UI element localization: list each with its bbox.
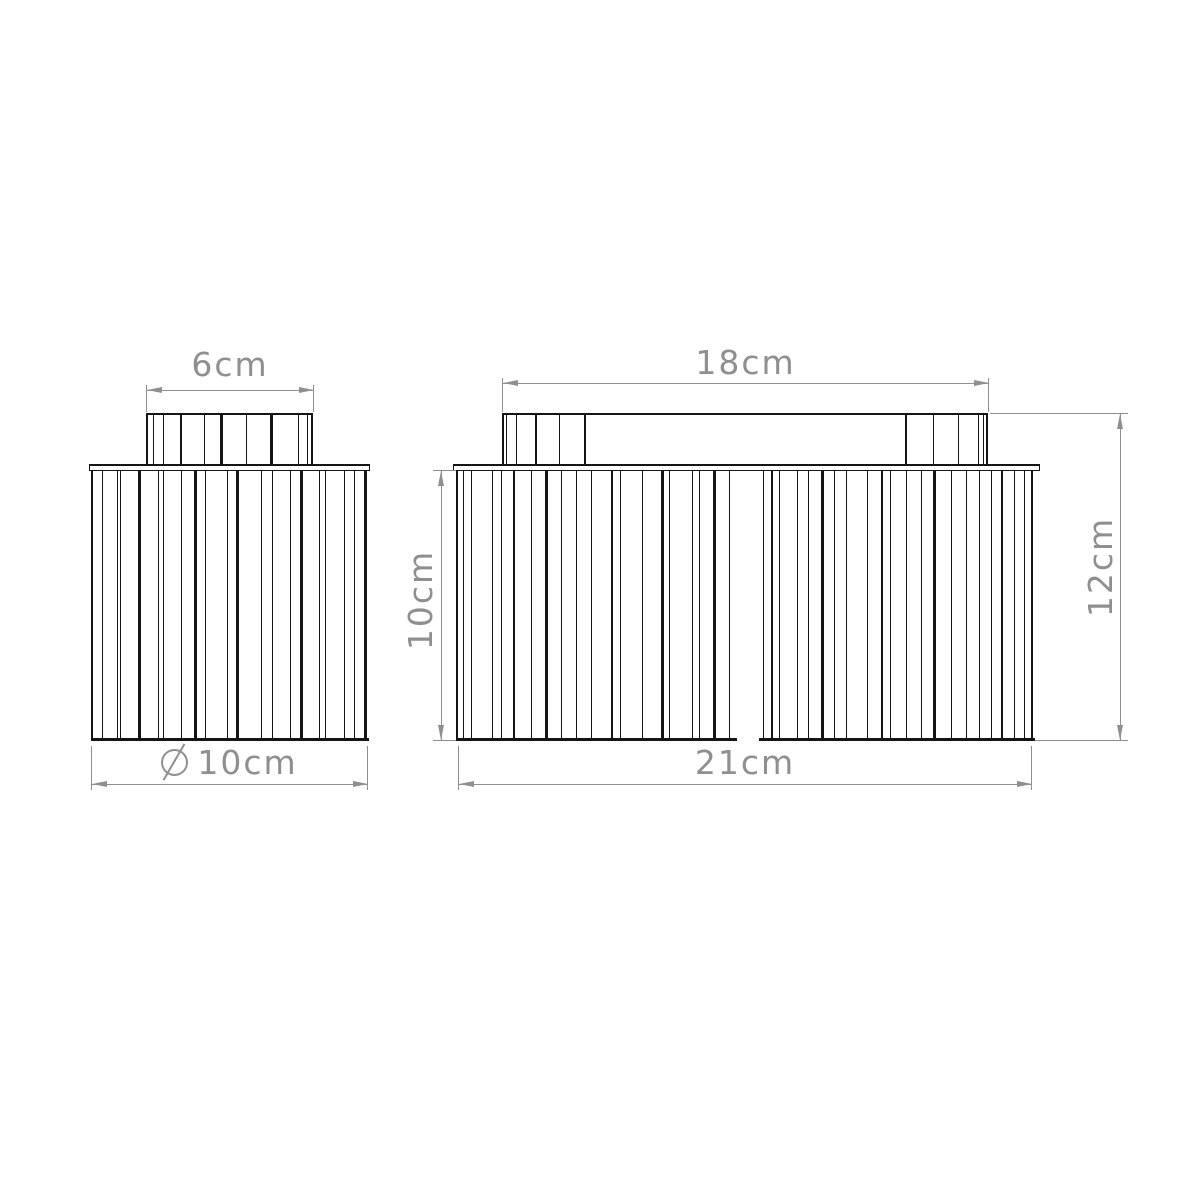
rib-line <box>364 471 365 741</box>
rib-line <box>138 471 141 741</box>
dimension-line <box>146 390 314 391</box>
bottom-edge <box>458 738 737 741</box>
arrow-down-icon <box>1117 725 1123 740</box>
rib-line <box>729 471 730 741</box>
extension-line <box>433 740 456 741</box>
lamp-dimension-drawing: 6cm 18cm 10cm 21cm <box>0 0 1200 1200</box>
arrow-left-icon <box>147 387 162 393</box>
rib-line <box>220 415 223 464</box>
rib-line <box>951 471 952 741</box>
rib-line <box>921 471 922 741</box>
dim-text: 21cm <box>695 743 795 782</box>
rib-line <box>713 471 716 741</box>
dim-text: 6cm <box>191 345 268 384</box>
dim-text: 10cm <box>401 550 440 650</box>
rib-line <box>584 413 586 464</box>
rib-line <box>307 415 308 464</box>
diameter-symbol-icon <box>161 749 188 776</box>
arrow-down-icon <box>438 725 444 740</box>
dim-label-diameter-left: 10cm <box>91 742 368 782</box>
rib-line <box>958 413 959 464</box>
rib-line <box>236 471 239 741</box>
rib-line <box>506 413 507 464</box>
dim-label-top-width-right: 18cm <box>502 342 989 382</box>
rib-line <box>270 415 273 464</box>
arrow-right-icon <box>299 387 314 393</box>
rib-line <box>991 471 992 741</box>
bottom-edge <box>93 738 369 741</box>
rib-line <box>120 471 121 741</box>
rib-line <box>319 471 320 741</box>
rib-line <box>933 471 936 741</box>
rib-line <box>1024 471 1025 741</box>
rib-line <box>771 471 773 741</box>
rib-line <box>779 471 780 741</box>
rib-line <box>978 413 979 464</box>
rib-line <box>205 471 206 741</box>
dimension-line <box>458 784 1032 785</box>
arrow-up-icon <box>438 471 444 486</box>
rib-line <box>561 471 562 741</box>
rib-line <box>661 471 664 741</box>
rib-line <box>983 413 984 464</box>
rib-line <box>204 415 205 464</box>
right-lamp-cap-left <box>502 413 585 464</box>
rib-line <box>821 471 824 741</box>
rib-line <box>516 413 517 464</box>
rib-line <box>181 471 182 741</box>
extension-line <box>1035 740 1128 741</box>
rib-line <box>117 471 118 741</box>
rib-line <box>354 471 355 741</box>
arrow-up-icon <box>1117 414 1123 429</box>
dim-text: 10cm <box>197 743 297 782</box>
rib-line <box>501 471 502 741</box>
rib-line <box>513 471 515 741</box>
rib-line <box>194 471 197 741</box>
rib-line <box>492 471 493 741</box>
rib-line <box>535 413 537 464</box>
dimension-line <box>91 784 368 785</box>
rib-line <box>102 471 103 741</box>
left-lamp-body <box>91 471 367 741</box>
rib-line <box>591 471 592 741</box>
rib-line <box>246 415 247 464</box>
dimension-line <box>502 383 989 384</box>
right-lamp-body <box>456 471 1033 741</box>
rib-line <box>890 471 891 741</box>
rib-line <box>834 471 835 741</box>
rib-line <box>227 471 228 741</box>
rib-line <box>163 471 164 741</box>
rib-line <box>1014 471 1015 741</box>
rib-line <box>153 415 154 464</box>
rib-line <box>576 471 577 741</box>
rib-line <box>933 413 934 464</box>
dim-text: 18cm <box>695 343 795 382</box>
rib-line <box>463 471 464 741</box>
rib-line <box>846 471 847 741</box>
rib-line <box>979 471 980 741</box>
rib-line <box>808 471 809 741</box>
rib-line <box>531 471 532 741</box>
rib-line <box>180 415 182 464</box>
rib-line <box>163 415 164 464</box>
right-lamp-flange <box>453 464 1040 471</box>
rib-line <box>325 471 326 741</box>
rib-line <box>290 471 291 741</box>
rib-line <box>298 415 299 464</box>
rib-line <box>881 471 883 741</box>
rib-line <box>559 413 560 464</box>
rib-line <box>611 471 613 741</box>
left-lamp-cap <box>146 413 313 464</box>
rib-line <box>620 471 621 741</box>
rib-line <box>344 471 345 741</box>
rib-line <box>272 471 273 741</box>
rib-line <box>763 471 764 741</box>
dim-text: 12cm <box>1081 517 1120 617</box>
dim-label-body-width-right: 21cm <box>458 742 1032 782</box>
rib-line <box>692 471 693 741</box>
dim-label-body-height-right: 10cm <box>400 530 440 670</box>
rib-line <box>906 471 907 741</box>
rib-line <box>905 413 907 464</box>
rib-line <box>471 471 472 741</box>
rib-line <box>261 471 262 741</box>
right-lamp-cap-right <box>905 413 988 464</box>
rib-line <box>642 471 643 741</box>
extension-line <box>433 470 456 471</box>
rib-line <box>300 471 303 741</box>
dimension-line <box>1120 413 1121 741</box>
rib-line <box>669 471 670 741</box>
extension-line <box>990 413 1128 414</box>
rib-line <box>867 471 868 741</box>
rib-line <box>966 471 967 741</box>
bottom-edge <box>759 738 1035 741</box>
rib-line <box>699 471 700 741</box>
rib-line <box>545 471 548 741</box>
dim-label-cap-width-left: 6cm <box>146 344 314 384</box>
rib-line <box>1001 471 1003 741</box>
rib-line <box>797 471 798 741</box>
rib-line <box>158 471 159 741</box>
dim-label-total-height-right: 12cm <box>1080 497 1120 637</box>
dimension-line <box>441 470 442 741</box>
left-lamp-flange <box>89 464 370 471</box>
